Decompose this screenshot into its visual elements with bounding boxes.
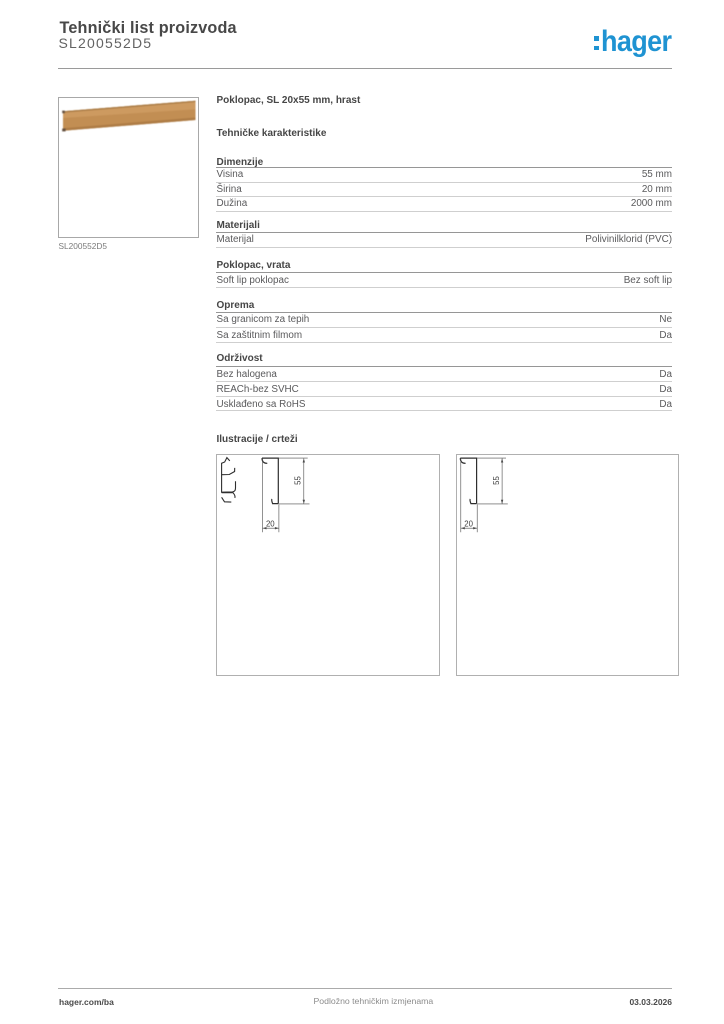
svg-text:20: 20 [266,520,275,529]
svg-text:55: 55 [294,476,303,485]
svg-text:20: 20 [464,520,473,529]
svg-text:55: 55 [492,476,501,485]
